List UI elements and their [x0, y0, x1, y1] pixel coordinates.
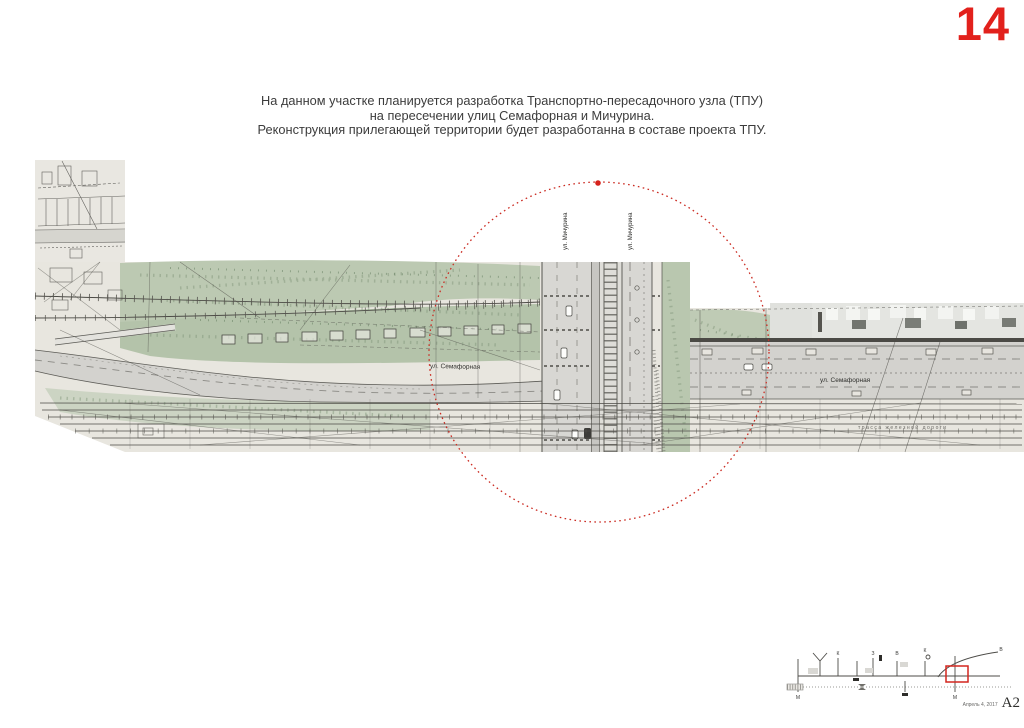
- scheme-highlight-square: [946, 666, 968, 682]
- label-michurina-west: ул. Мичурина: [563, 212, 569, 250]
- annotation-line-3: Реконструкция прилегающей территории буд…: [0, 123, 1024, 138]
- annotation-block: На данном участке планируется разработка…: [0, 94, 1024, 138]
- page-number: 14: [956, 0, 1010, 47]
- scheme-label: З: [871, 651, 874, 657]
- label-michurina-east: ул. Мичурина: [628, 212, 634, 250]
- route-scheme: К З В К В М М: [787, 647, 1012, 701]
- footer-date: Апрель 4, 2017: [963, 703, 998, 711]
- scheme-metro-label: М: [796, 695, 800, 701]
- label-semafornaya-west: ул. Семафорная: [430, 363, 481, 371]
- corridor-michurina: [542, 262, 664, 452]
- annotation-line-2: на пересечении улиц Семафорная и Мичурин…: [0, 109, 1024, 124]
- scheme-label: В: [895, 651, 899, 657]
- sheet-format-label: А2: [1002, 696, 1020, 711]
- scheme-label: К: [924, 648, 927, 654]
- label-semafornaya-east: ул. Семафорная: [820, 377, 871, 384]
- footer-stamp: Апрель 4, 2017 А2: [948, 696, 1020, 711]
- focus-circle-anchor-dot: [595, 180, 601, 186]
- scheme-label: К: [837, 651, 840, 657]
- label-railway-note: трасса железной дороги: [858, 424, 947, 431]
- scheme-label: В: [999, 647, 1003, 653]
- annotation-line-1: На данном участке планируется разработка…: [0, 94, 1024, 109]
